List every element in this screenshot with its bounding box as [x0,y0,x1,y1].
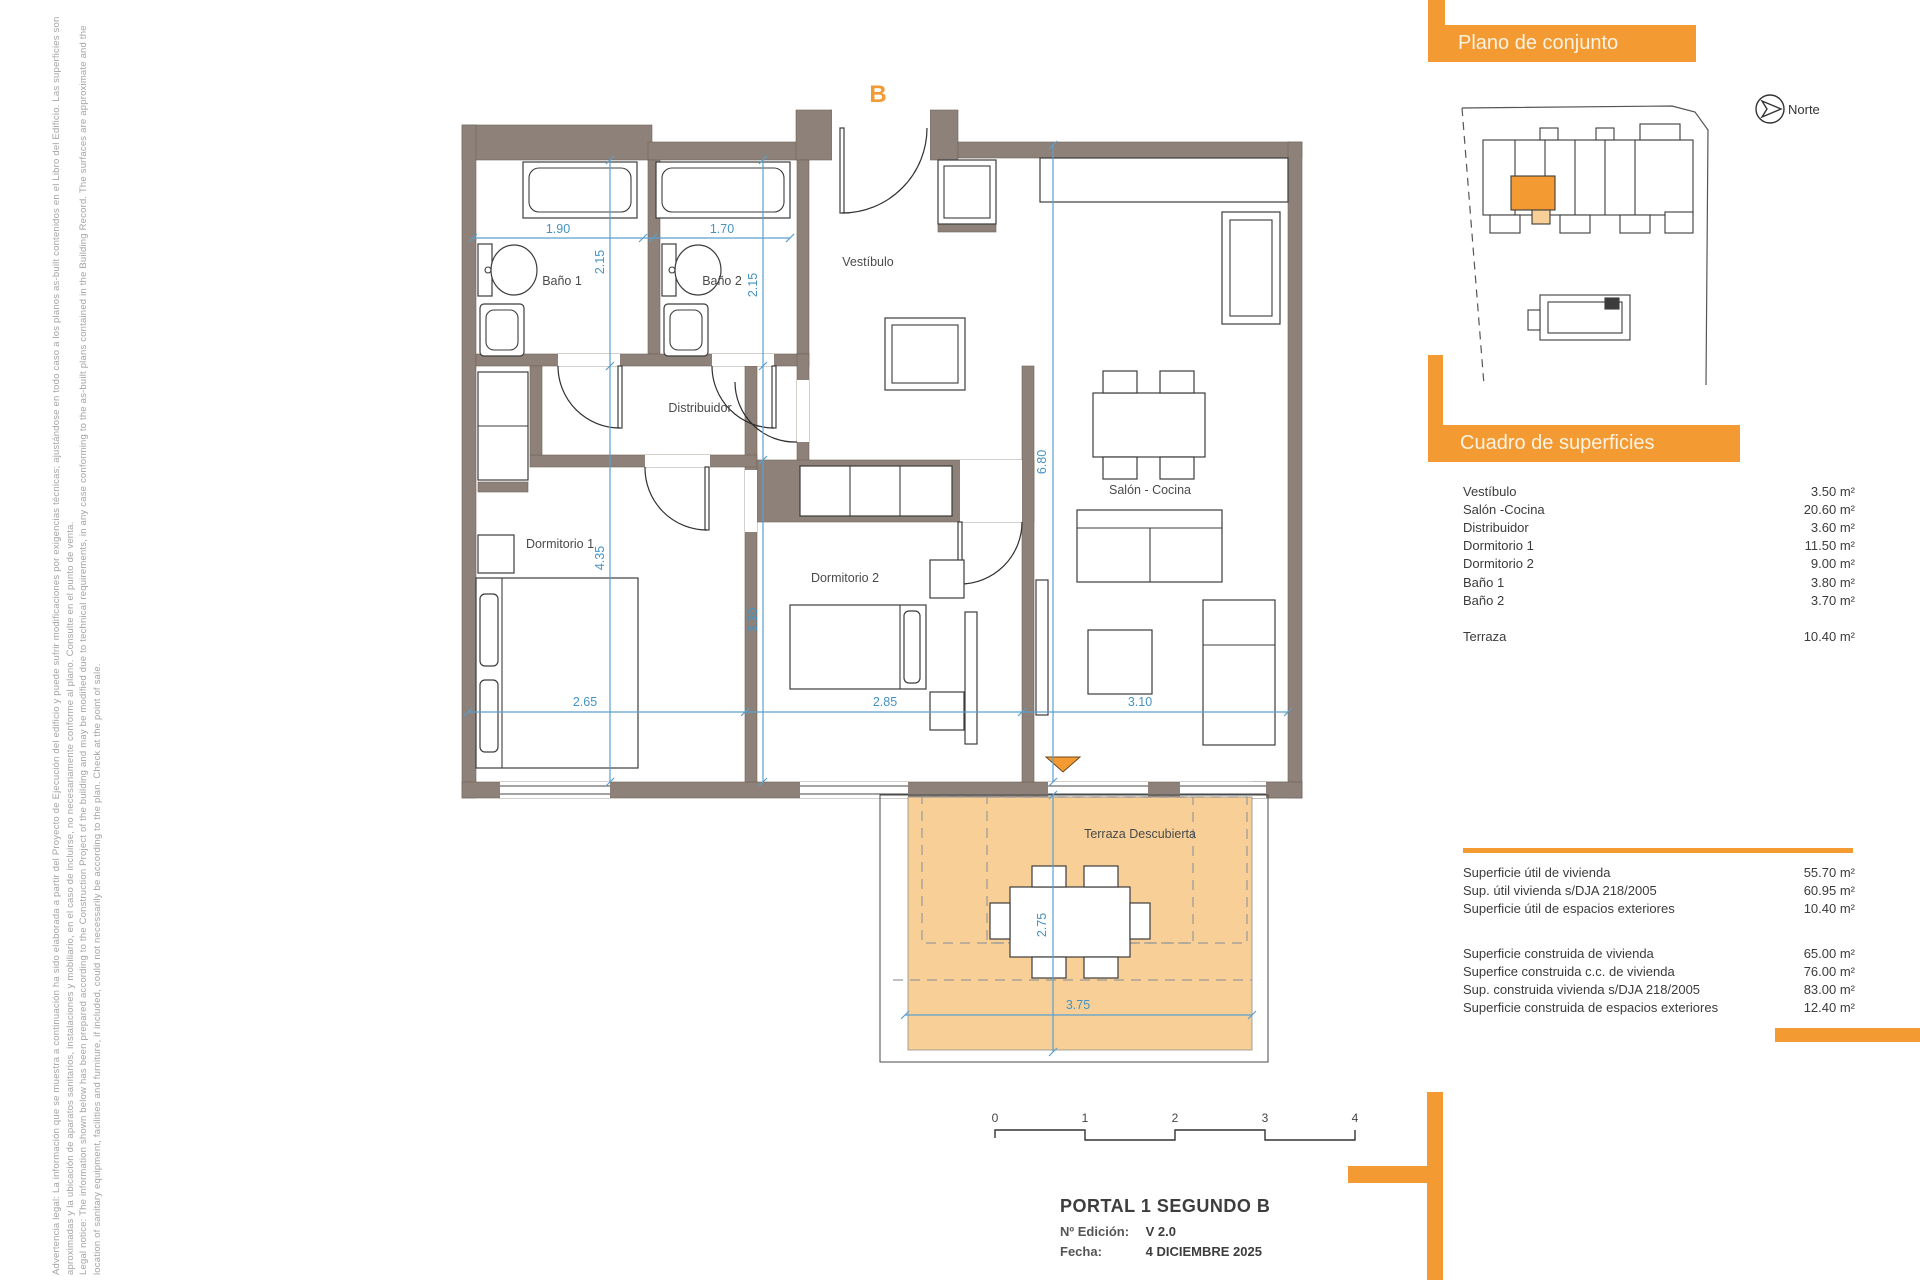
surfaces-banner: Cuadro de superficies [1428,425,1740,462]
window-dorm1 [500,782,610,798]
dim-dorm2-h: 3.30 [746,608,760,632]
room-label-bano2: Baño 2 [702,274,742,288]
edition-label: Nº Edición: [1060,1224,1142,1239]
date-value: 4 DICIEMBRE 2025 [1146,1244,1262,1259]
bedroom1-door [645,467,709,530]
bath1-door [558,366,622,428]
date-row: Fecha: 4 DICIEMBRE 2025 [1060,1244,1262,1259]
dim-terraza-h: 2.75 [1035,913,1049,937]
room-label-distribuidor: Distribuidor [668,401,731,415]
room-label-bano1: Baño 1 [542,274,582,288]
surface-row-terraza: Terraza10.40 m² [1463,627,1855,645]
legal-line-en-1: Legal notice: The information shown belo… [77,5,91,1275]
date-label: Fecha: [1060,1244,1142,1259]
room-label-dorm2: Dormitorio 2 [811,571,879,585]
scale-tick-0: 0 [992,1111,999,1125]
scale-tick-2: 2 [1172,1111,1179,1125]
summary-table-built: Superficie construida de vivienda65.00 m… [1463,944,1855,1017]
room-label-salon: Salón - Cocina [1109,483,1191,497]
summary-row: Superficie útil de espacios exteriores10… [1463,899,1855,917]
overview-accent-bar [1428,0,1445,25]
room-label-dorm1: Dormitorio 1 [526,537,594,551]
surface-row: Distribuidor3.60 m² [1463,518,1855,536]
room-label-vestibulo: Vestíbulo [842,255,893,269]
bath2-door [712,366,776,428]
room-label-terraza: Terraza Descubierta [1084,827,1196,841]
terrace-access-marker [1046,757,1080,772]
surfaces-title: Cuadro de superficies [1460,432,1655,455]
window-salon [1180,782,1266,798]
scale-tick-1: 1 [1082,1111,1089,1125]
living-furniture [1036,371,1275,745]
bedroom2-door [958,522,1022,584]
summary-row: Sup. útil vivienda s/DJA 218/200560.95 m… [1463,881,1855,899]
summary-bottom-bar [1775,1028,1920,1042]
north-label: Norte [1788,102,1820,117]
surface-row: Dormitorio 29.00 m² [1463,555,1855,573]
edition-value: V 2.0 [1146,1224,1176,1239]
footer-accent-hbar [1348,1166,1443,1183]
dim-bano1-h: 2.15 [593,250,607,274]
site-unit-highlight [1511,176,1555,210]
site-unit-terrace [1532,210,1550,224]
edition-row: Nº Edición: V 2.0 [1060,1224,1176,1239]
surface-row: Salón -Cocina20.60 m² [1463,500,1855,518]
surface-row: Baño 13.80 m² [1463,573,1855,591]
summary-row: Superfice construida c.c. de vivienda76.… [1463,962,1855,980]
bath2-fixtures [656,162,790,356]
site-buildings [1483,124,1693,340]
overview-title: Plano de conjunto [1458,32,1618,55]
summary-row: Sup. construida vivienda s/DJA 218/20058… [1463,980,1855,998]
surface-row: Baño 23.70 m² [1463,591,1855,609]
kitchen-fixtures [885,158,1288,390]
scale-tick-4: 4 [1352,1111,1359,1125]
dim-dorm1-w: 2.65 [573,695,597,709]
overview-banner: Plano de conjunto [1428,25,1696,62]
hall-door [735,382,797,442]
dim-salon-w: 3.10 [1128,695,1152,709]
footer-accent-vbar [1427,1092,1443,1280]
summary-table-util: Superficie útil de vivienda55.70 m² Sup.… [1463,863,1855,918]
site-plan: Norte [1440,85,1890,400]
north-arrow-icon [1756,95,1784,123]
dim-terraza-w: 3.75 [1066,998,1090,1012]
dim-bano2-h: 2.15 [746,273,760,297]
sheet-title: PORTAL 1 SEGUNDO B [1060,1196,1270,1217]
surface-row: Dormitorio 111.50 m² [1463,537,1855,555]
plan-sheet: { "colors":{"accent":"#F39A33","terrace_… [0,0,1920,1280]
scale-tick-3: 3 [1262,1111,1269,1125]
terrace-door [1048,782,1148,798]
legal-line-es-2: aproximadas y la ubicación de aparatos s… [64,5,78,1275]
surfaces-accent-bar [1428,355,1443,425]
legal-line-en-2: location of sanitary equipment, faciliti… [91,5,105,1275]
unit-letter: B [869,81,886,108]
surfaces-table: Vestíbulo3.50 m² Salón -Cocina20.60 m² D… [1463,482,1855,646]
summary-row: Superficie construida de espacios exteri… [1463,999,1855,1017]
dim-salon-h: 6.80 [1035,450,1049,474]
terrace [880,757,1268,1062]
summary-row: Superficie construida de vivienda65.00 m… [1463,944,1855,962]
summary-top-bar [1463,848,1853,853]
bath1-fixtures [478,162,637,356]
floor-plan: B [440,70,1340,1090]
dim-dorm2-w: 2.85 [873,695,897,709]
window-dorm2 [800,782,908,798]
legal-disclaimer: Advertencia legal: La información que se… [50,5,106,1275]
bedroom1-furniture [476,372,638,768]
dim-bano1-w: 1.90 [546,222,570,236]
surface-row: Vestíbulo3.50 m² [1463,482,1855,500]
legal-line-es-1: Advertencia legal: La información que se… [50,5,64,1275]
dim-dorm1-h: 4.35 [593,546,607,570]
dim-bano2-w: 1.70 [710,222,734,236]
scale-bar: 0 1 2 3 4 [970,1095,1380,1160]
summary-row: Superficie útil de vivienda55.70 m² [1463,863,1855,881]
